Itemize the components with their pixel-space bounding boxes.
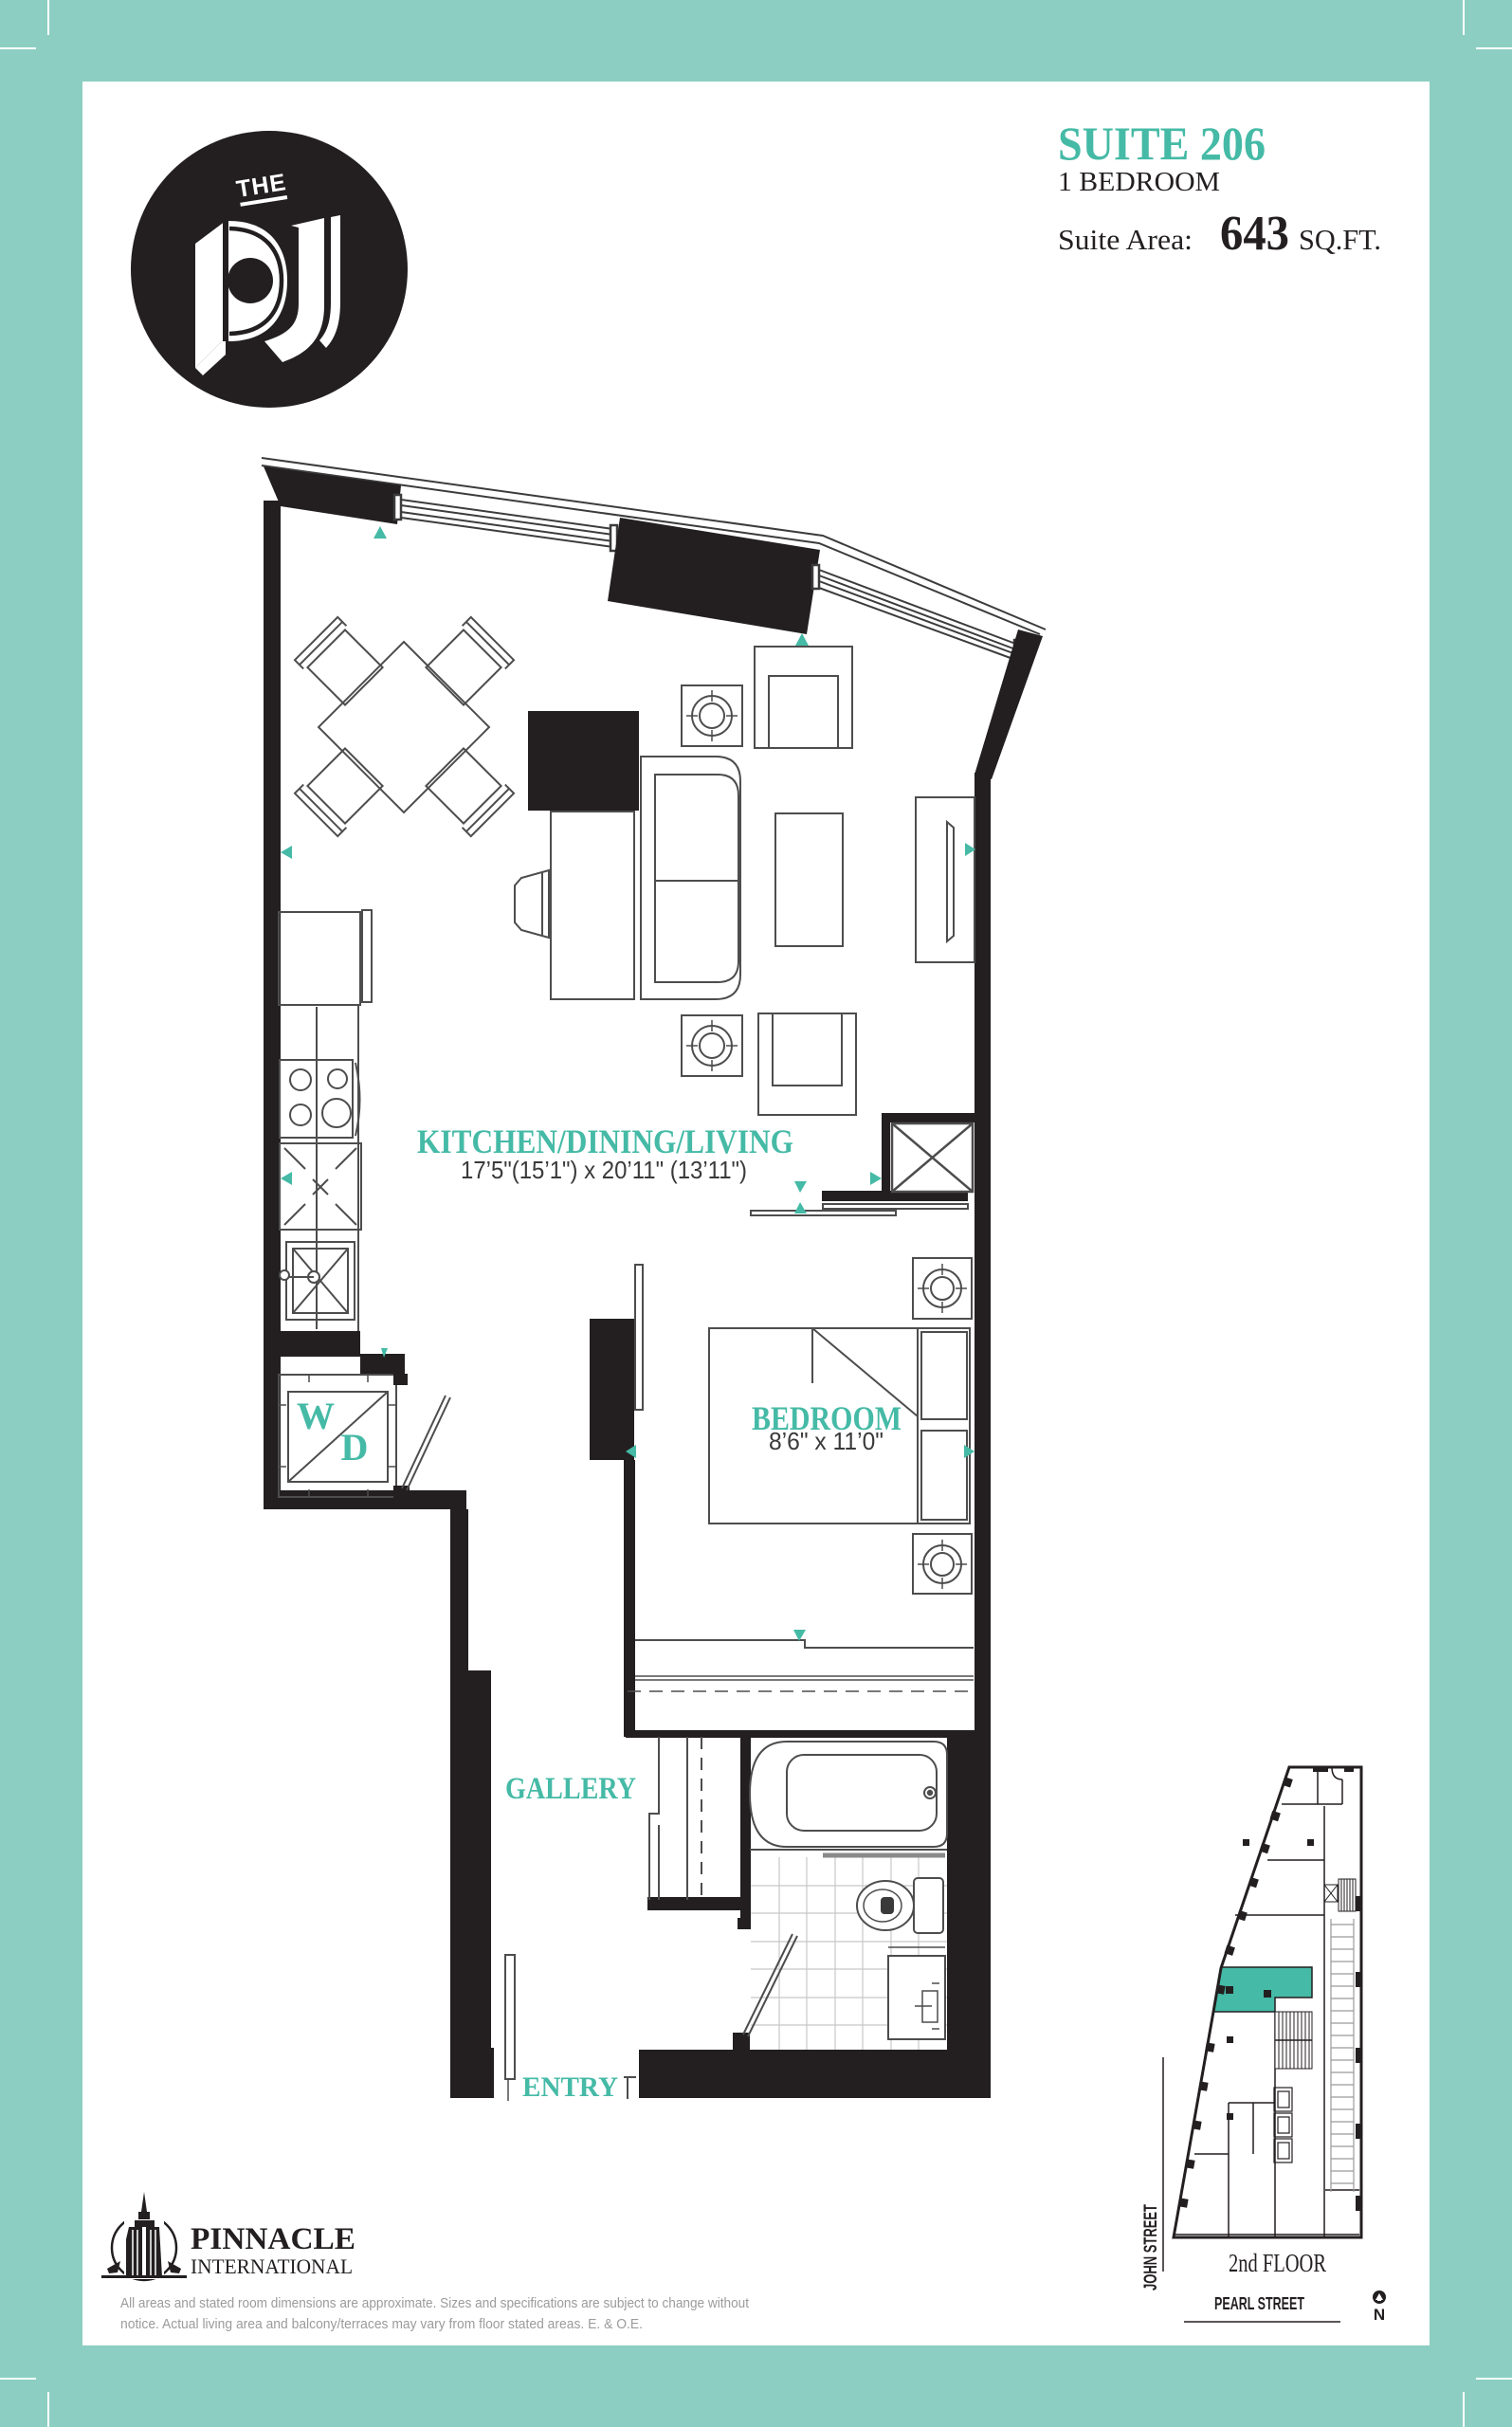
- svg-text:643: 643: [1220, 207, 1289, 261]
- svg-text:PEARL STREET: PEARL STREET: [1214, 2294, 1304, 2313]
- svg-text:D: D: [341, 1426, 369, 1469]
- svg-text:SQ.FT.: SQ.FT.: [1299, 223, 1381, 256]
- svg-text:JOHN STREET: JOHN STREET: [1141, 2204, 1161, 2290]
- svg-text:PINNACLE: PINNACLE: [191, 2222, 355, 2256]
- svg-text:N: N: [1374, 2306, 1385, 2324]
- svg-text:Suite Area:: Suite Area:: [1058, 223, 1193, 256]
- svg-text:8’6" x 11’0": 8’6" x 11’0": [769, 1427, 884, 1455]
- svg-text:GALLERY: GALLERY: [505, 1772, 636, 1806]
- svg-text:2nd FLOOR: 2nd FLOOR: [1229, 2249, 1326, 2277]
- svg-text:All areas and stated room dime: All areas and stated room dimensions are…: [120, 2295, 750, 2311]
- svg-text:ENTRY: ENTRY: [522, 2071, 618, 2103]
- svg-text:KITCHEN/DINING/LIVING: KITCHEN/DINING/LIVING: [417, 1122, 793, 1160]
- svg-text:SUITE 206: SUITE 206: [1058, 117, 1266, 170]
- svg-text:INTERNATIONAL: INTERNATIONAL: [191, 2254, 353, 2278]
- svg-text:1 BEDROOM: 1 BEDROOM: [1058, 167, 1220, 197]
- svg-text:W: W: [297, 1395, 335, 1437]
- svg-text:17’5"(15’1") x 20’11" (13’11"): 17’5"(15’1") x 20’11" (13’11"): [461, 1156, 747, 1184]
- svg-text:notice. Actual living area and: notice. Actual living area and balcony/t…: [120, 2316, 643, 2332]
